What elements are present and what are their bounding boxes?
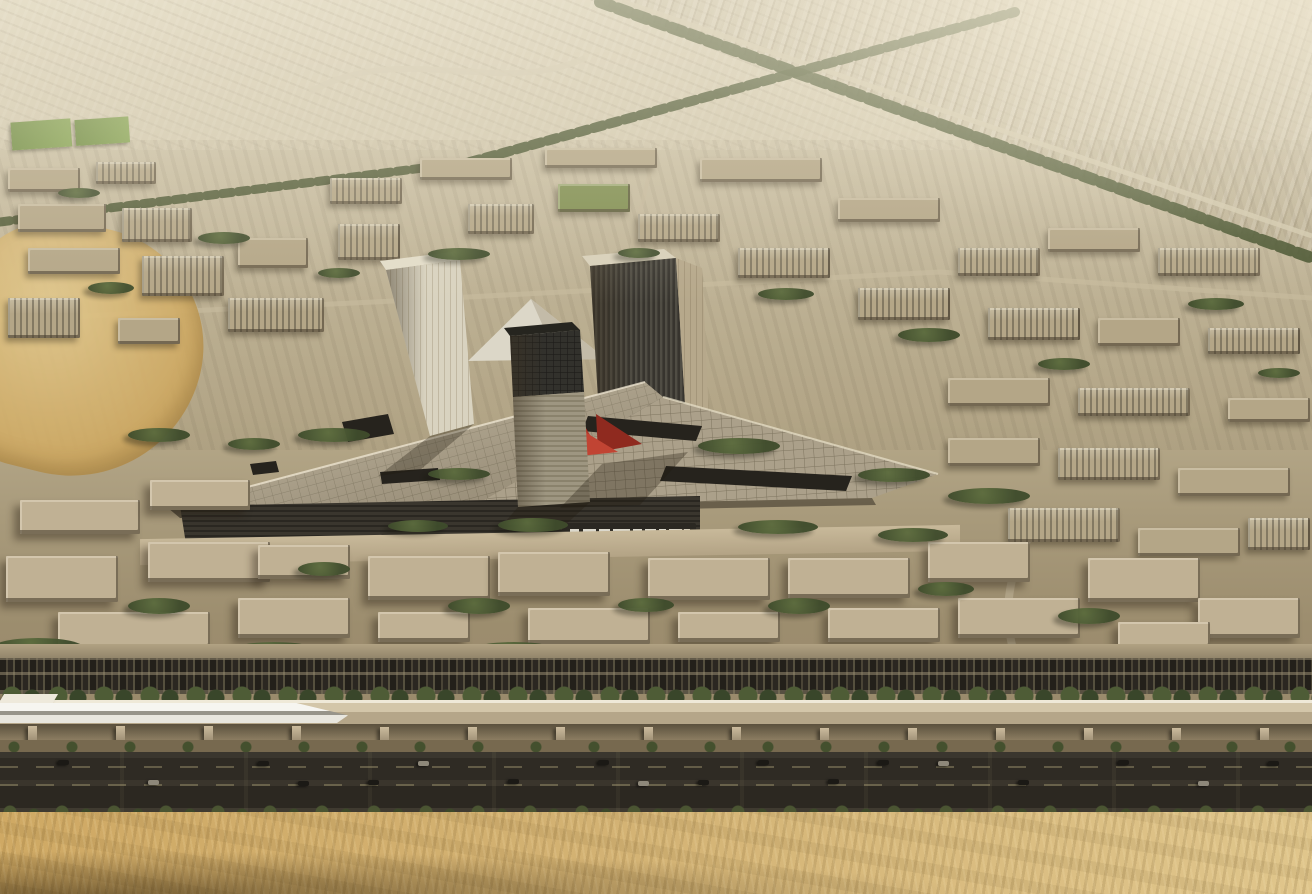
car — [1118, 760, 1129, 765]
car — [828, 779, 839, 784]
desert-sand — [0, 812, 1312, 894]
highway-traffic — [0, 0, 1312, 894]
car — [368, 780, 379, 785]
car — [1268, 761, 1279, 766]
car — [298, 781, 309, 786]
car — [758, 760, 769, 765]
car — [878, 760, 889, 765]
car — [938, 761, 949, 766]
car — [1018, 780, 1029, 785]
car — [638, 781, 649, 786]
car — [1198, 781, 1209, 786]
car — [258, 761, 269, 766]
aerial-rendering — [0, 0, 1312, 894]
car — [58, 760, 69, 765]
car — [418, 761, 429, 766]
car — [508, 779, 519, 784]
car — [148, 780, 159, 785]
car — [698, 780, 709, 785]
car — [598, 760, 609, 765]
